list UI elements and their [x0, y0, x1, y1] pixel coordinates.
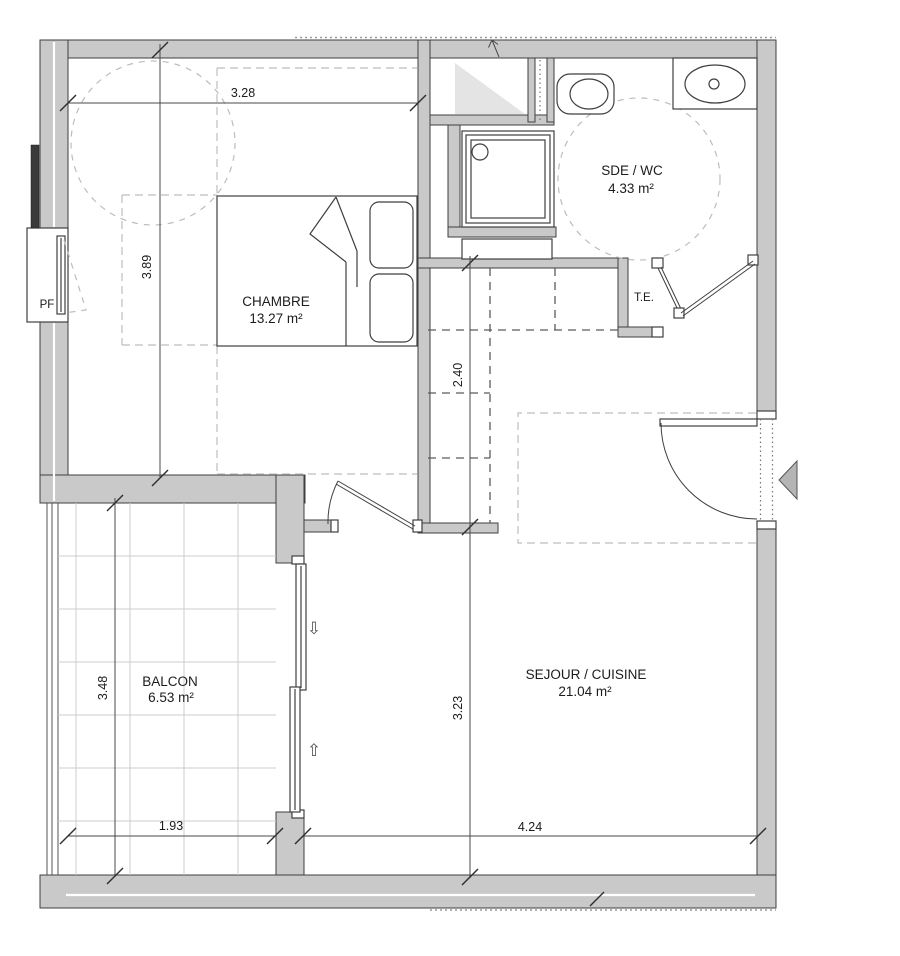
wall-chambre-door-stub [304, 520, 331, 532]
chambre-door [328, 481, 422, 532]
room-label-chambre: CHAMBRE [242, 294, 310, 309]
window-label-pf: PF [40, 299, 55, 311]
wall-chambre-east [418, 40, 430, 523]
dim-balcon-width: 1.93 [159, 819, 183, 833]
room-area-balcon: 6.53 m² [148, 690, 194, 705]
wall-shower-west [448, 125, 460, 237]
wall-right-upper [757, 40, 776, 419]
entry-direction-arrow-icon [779, 461, 797, 499]
room-label-te: T.E. [634, 292, 654, 304]
balcony-sliding-door: ⇩ ⇧ [290, 556, 321, 818]
dim-chambre-depth: 3.89 [140, 255, 154, 279]
room-area-sejour: 21.04 m² [558, 684, 612, 699]
wall-hall-south [418, 523, 498, 533]
dim-sejour-depth: 3.23 [451, 696, 465, 720]
toilet-tank [557, 74, 614, 114]
bathroom-door [674, 255, 758, 318]
wall-balcony-divider-bottom [276, 812, 304, 875]
room-label-balcon: BALCON [142, 674, 198, 689]
room-area-sde-wc: 4.33 m² [608, 181, 654, 196]
turning-circle-chambre [71, 61, 235, 225]
bed [217, 196, 417, 346]
wall-top [40, 40, 776, 58]
bathroom-cabinet [462, 239, 552, 259]
entry-door-leaf [660, 419, 757, 426]
floor-plan: ⇩ ⇧ CHAMBRE 13.27 m² SDE / WC 4.33 m² T.… [0, 0, 900, 956]
wall-partition-a [528, 58, 535, 122]
room-label-sejour: SEJOUR / CUISINE [526, 667, 647, 682]
dim-balcon-depth: 3.48 [96, 676, 110, 700]
shutter-strip [31, 145, 39, 228]
floor-plan-drawing: ⇩ ⇧ CHAMBRE 13.27 m² SDE / WC 4.33 m² T.… [0, 0, 900, 956]
wall-balcony-divider-top [276, 475, 304, 563]
wall-shower-south [448, 227, 556, 237]
wall-bottom [40, 875, 776, 908]
room-area-chambre: 13.27 m² [249, 311, 303, 326]
balcony-railing [47, 503, 58, 875]
chambre-door-swing [328, 481, 338, 524]
hall-closet-dashed [428, 268, 618, 523]
walls [40, 38, 776, 911]
pillow-bottom [370, 274, 413, 342]
dim-chambre-width: 3.28 [231, 86, 255, 100]
shower [462, 131, 554, 227]
vanity [673, 58, 757, 109]
dim-entry-depth: 2.40 [451, 363, 465, 387]
closet-shade-triangle [455, 63, 525, 114]
entry-door-swing [661, 423, 757, 519]
kitchen-zone-dashed [518, 413, 756, 543]
wall-partition-b [547, 58, 554, 122]
closet [455, 60, 540, 122]
te-door [652, 258, 681, 337]
entry-door [660, 411, 797, 529]
wall-te-west [618, 258, 628, 337]
pillow-top [370, 202, 413, 268]
wall-chambre-south [40, 475, 305, 503]
toilet [557, 74, 614, 114]
slide-down-arrow-icon: ⇩ [307, 619, 321, 638]
wall-right-lower [757, 521, 776, 908]
turning-circle-bathroom [558, 98, 720, 260]
room-label-sde-wc: SDE / WC [601, 163, 663, 178]
dim-sejour-width: 4.24 [518, 820, 542, 834]
slide-up-arrow-icon: ⇧ [307, 741, 321, 760]
